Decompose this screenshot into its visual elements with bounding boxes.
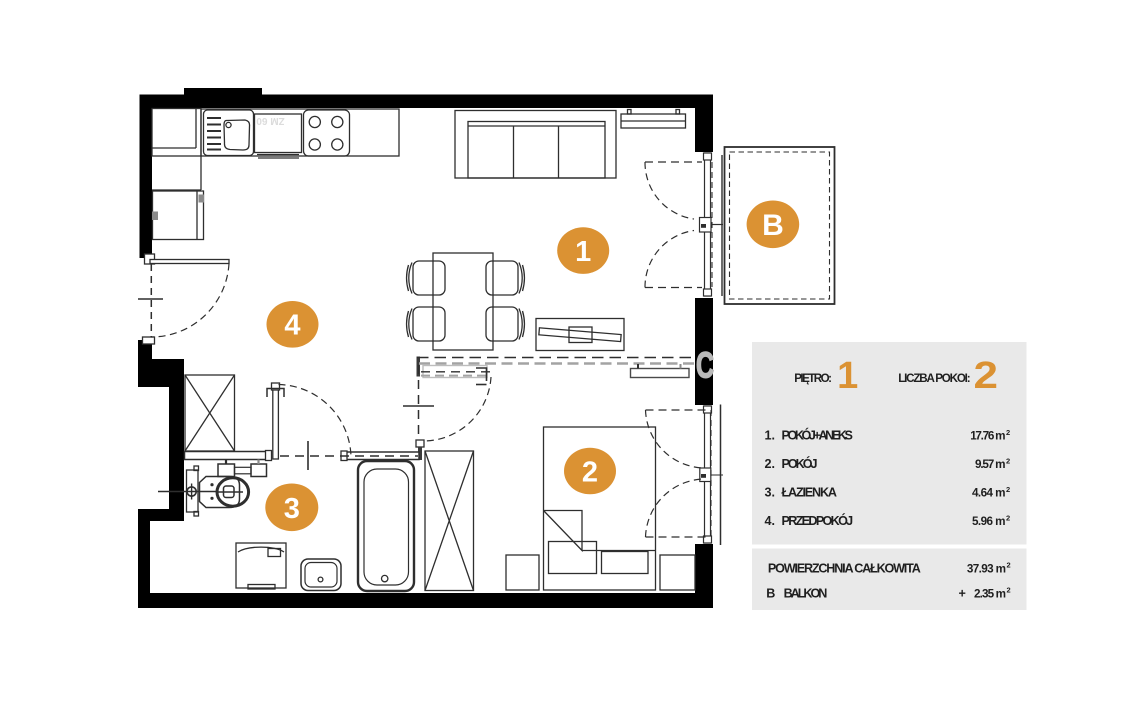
- svg-text:1: 1: [575, 236, 591, 268]
- svg-text:1.: 1.: [765, 429, 776, 443]
- svg-text:2: 2: [1006, 485, 1010, 494]
- svg-text:+: +: [959, 586, 966, 600]
- svg-text:2: 2: [1006, 428, 1010, 437]
- svg-text:B: B: [766, 586, 775, 600]
- svg-text:POWIERZCHNIA CAŁKOWITA: POWIERZCHNIA CAŁKOWITA: [768, 561, 921, 575]
- svg-text:3: 3: [284, 493, 300, 525]
- svg-text:C: C: [696, 345, 714, 386]
- svg-text:ZM 60: ZM 60: [256, 115, 285, 126]
- svg-text:2: 2: [1007, 561, 1011, 570]
- svg-text:4.: 4.: [765, 514, 776, 528]
- svg-text:ŁAZIENKA: ŁAZIENKA: [782, 486, 838, 500]
- svg-text:4.64 m: 4.64 m: [972, 487, 1006, 500]
- svg-text:2: 2: [1006, 456, 1010, 465]
- svg-text:PRZEDPOKÓJ: PRZEDPOKÓJ: [782, 513, 854, 528]
- svg-text:5.96 m: 5.96 m: [972, 515, 1006, 528]
- svg-text:POKÓJ: POKÓJ: [782, 456, 818, 471]
- svg-text:4: 4: [284, 310, 300, 342]
- svg-text:POKÓJ+ANEKS: POKÓJ+ANEKS: [782, 428, 853, 443]
- svg-text:LICZBA POKOI:: LICZBA POKOI:: [898, 372, 970, 385]
- svg-text:2: 2: [582, 456, 598, 488]
- svg-text:2.: 2.: [765, 457, 776, 471]
- svg-text:2: 2: [974, 355, 999, 397]
- svg-text:2: 2: [1007, 586, 1011, 595]
- svg-text:2.35 m: 2.35 m: [974, 587, 1006, 600]
- svg-text:37.93 m: 37.93 m: [967, 562, 1006, 575]
- svg-text:2: 2: [1006, 514, 1010, 523]
- svg-text:1: 1: [837, 355, 858, 397]
- svg-text:BALKON: BALKON: [784, 586, 828, 600]
- svg-text:PIĘTRO:: PIĘTRO:: [794, 372, 832, 385]
- svg-text:9.57 m: 9.57 m: [975, 458, 1006, 471]
- svg-text:3.: 3.: [765, 486, 776, 500]
- svg-text:17.76 m: 17.76 m: [970, 430, 1005, 443]
- svg-text:B: B: [762, 209, 784, 242]
